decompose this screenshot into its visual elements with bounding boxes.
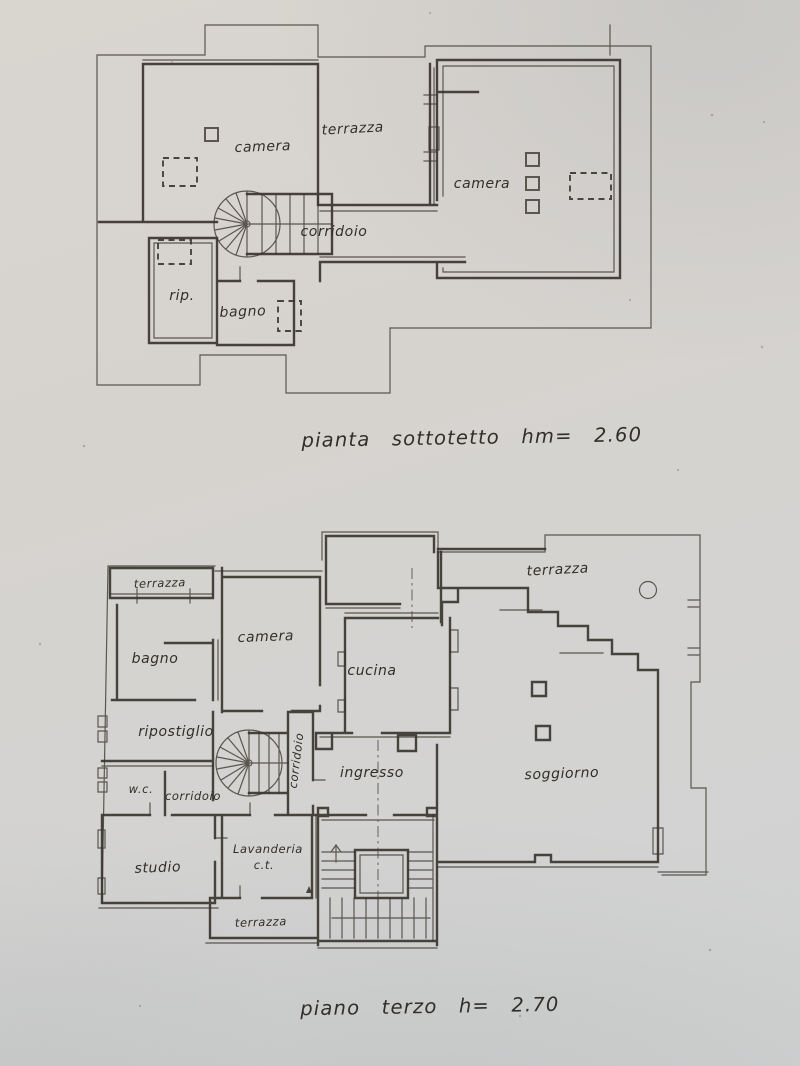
room-label-soggiorno: soggiorno [524, 765, 599, 784]
room-label-studio: studio [134, 859, 181, 877]
plan-piano-terzo: terrazza bagno camera cucina terrazza ri… [98, 532, 708, 1020]
room-label-wc: w.c. [129, 782, 154, 796]
room-label-corridoio: corridoio [301, 224, 368, 240]
room-label-rip: rip. [169, 288, 194, 304]
room-label-cucina: cucina [347, 663, 396, 679]
room-label-ripostiglio: ripostiglio [138, 724, 214, 740]
scanned-floorplan-sheet: camera terrazza camera corridoio rip. ba… [0, 0, 800, 1066]
room-label-corridoio-small: corridoio [165, 789, 221, 803]
plan1-outer-outline [97, 25, 651, 393]
room-label-ingresso: ingresso [340, 765, 404, 781]
caption-sottotetto: pianta sottotetto hm= 2.60 [300, 423, 642, 452]
room-label-camera-left: camera [234, 138, 291, 156]
room-label-lavanderia: Lavanderia [233, 842, 303, 856]
floorplan-drawing: camera terrazza camera corridoio rip. ba… [0, 0, 800, 1066]
room-label-ct: c.t. [254, 858, 275, 872]
room-label-terrazza-bottom: terrazza [235, 914, 287, 930]
room-label-camera2: camera [237, 628, 294, 646]
room-label-bagno2: bagno [132, 651, 179, 667]
room-label-terrazza: terrazza [321, 119, 384, 138]
room-label-camera-right: camera [454, 176, 510, 192]
plan-sottotetto: camera terrazza camera corridoio rip. ba… [97, 25, 651, 452]
room-label-bagno: bagno [219, 303, 266, 321]
plan2-outer-outline [98, 532, 708, 948]
room-label-terrazza-top-right: terrazza [526, 560, 589, 579]
room-label-terrazza-top-left: terrazza [134, 575, 186, 591]
plan2-walls [102, 536, 658, 945]
